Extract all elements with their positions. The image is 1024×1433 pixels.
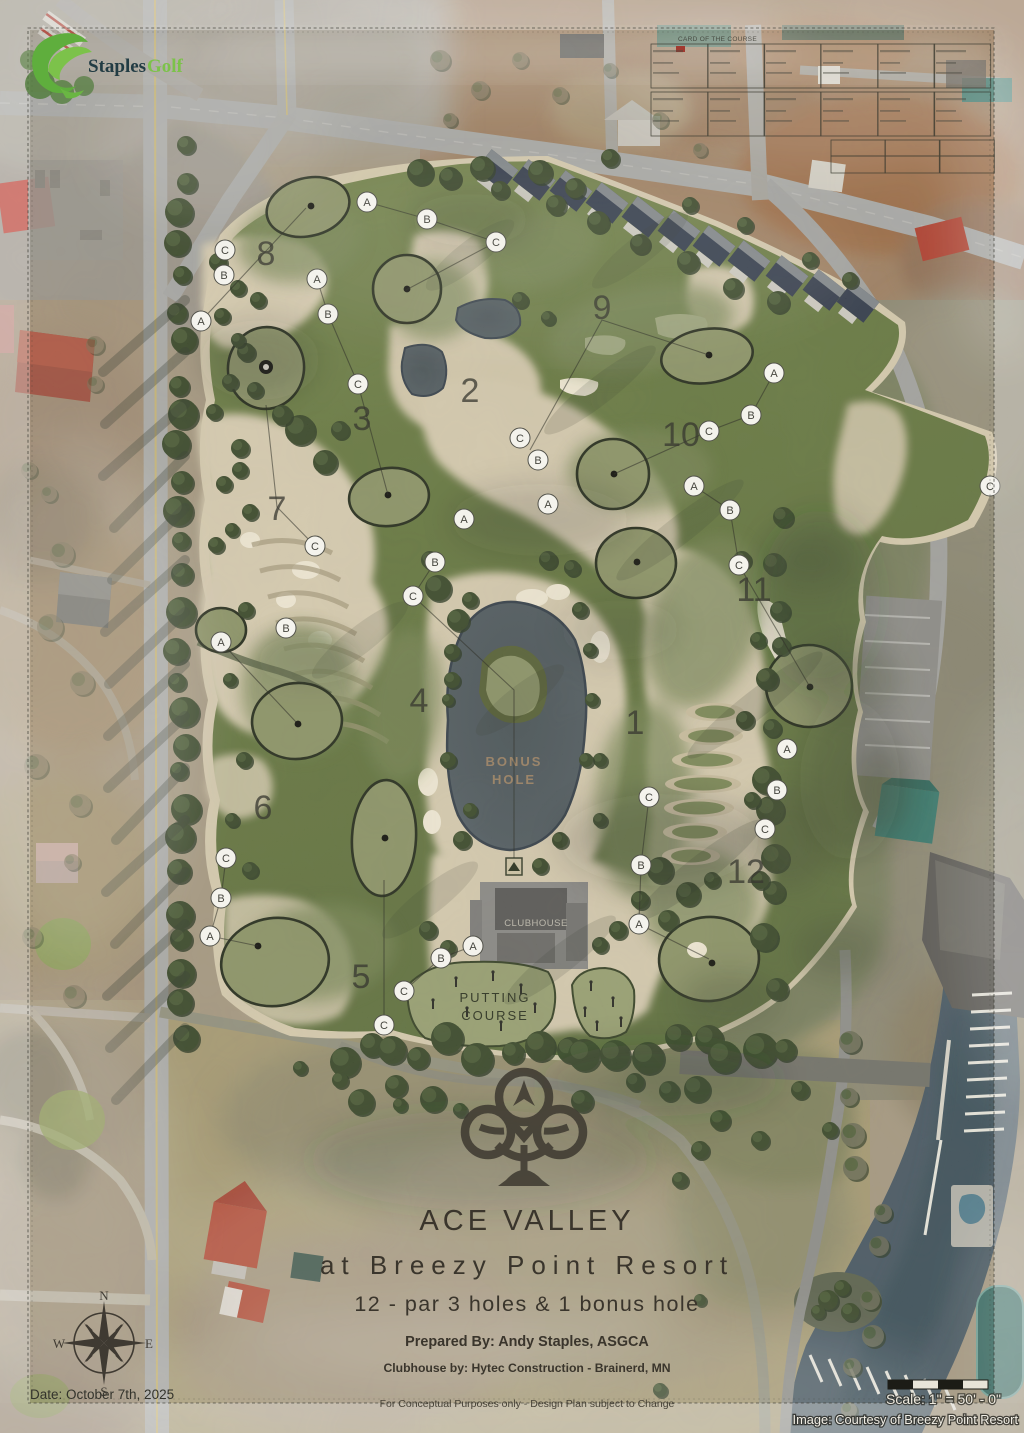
svg-text:N: N xyxy=(99,1288,109,1303)
svg-text:CARD OF THE COURSE: CARD OF THE COURSE xyxy=(678,36,757,43)
svg-text:Staples: Staples xyxy=(88,56,146,77)
svg-text:E: E xyxy=(145,1336,153,1351)
svg-text:Golf: Golf xyxy=(147,56,184,77)
svg-text:ACE VALLEY: ACE VALLEY xyxy=(419,1205,634,1237)
svg-text:12 - par 3 holes & 1 bonus hol: 12 - par 3 holes & 1 bonus hole xyxy=(354,1292,699,1316)
svg-text:Prepared By: Andy Staples, ASG: Prepared By: Andy Staples, ASGCA xyxy=(405,1334,649,1350)
svg-text:Date: October 7th, 2025: Date: October 7th, 2025 xyxy=(30,1387,174,1402)
svg-text:at Breezy Point Resort: at Breezy Point Resort xyxy=(320,1250,734,1280)
svg-text:For Conceptual Purposes only -: For Conceptual Purposes only - Design Pl… xyxy=(380,1398,675,1410)
svg-text:Scale: 1" = 50' - 0": Scale: 1" = 50' - 0" xyxy=(886,1391,1001,1407)
svg-text:Image: Courtesy of Breezy Poin: Image: Courtesy of Breezy Point Resort xyxy=(793,1412,1019,1427)
svg-text:W: W xyxy=(53,1336,66,1351)
svg-text:Clubhouse by: Hytec Constructi: Clubhouse by: Hytec Construction - Brain… xyxy=(383,1361,670,1375)
